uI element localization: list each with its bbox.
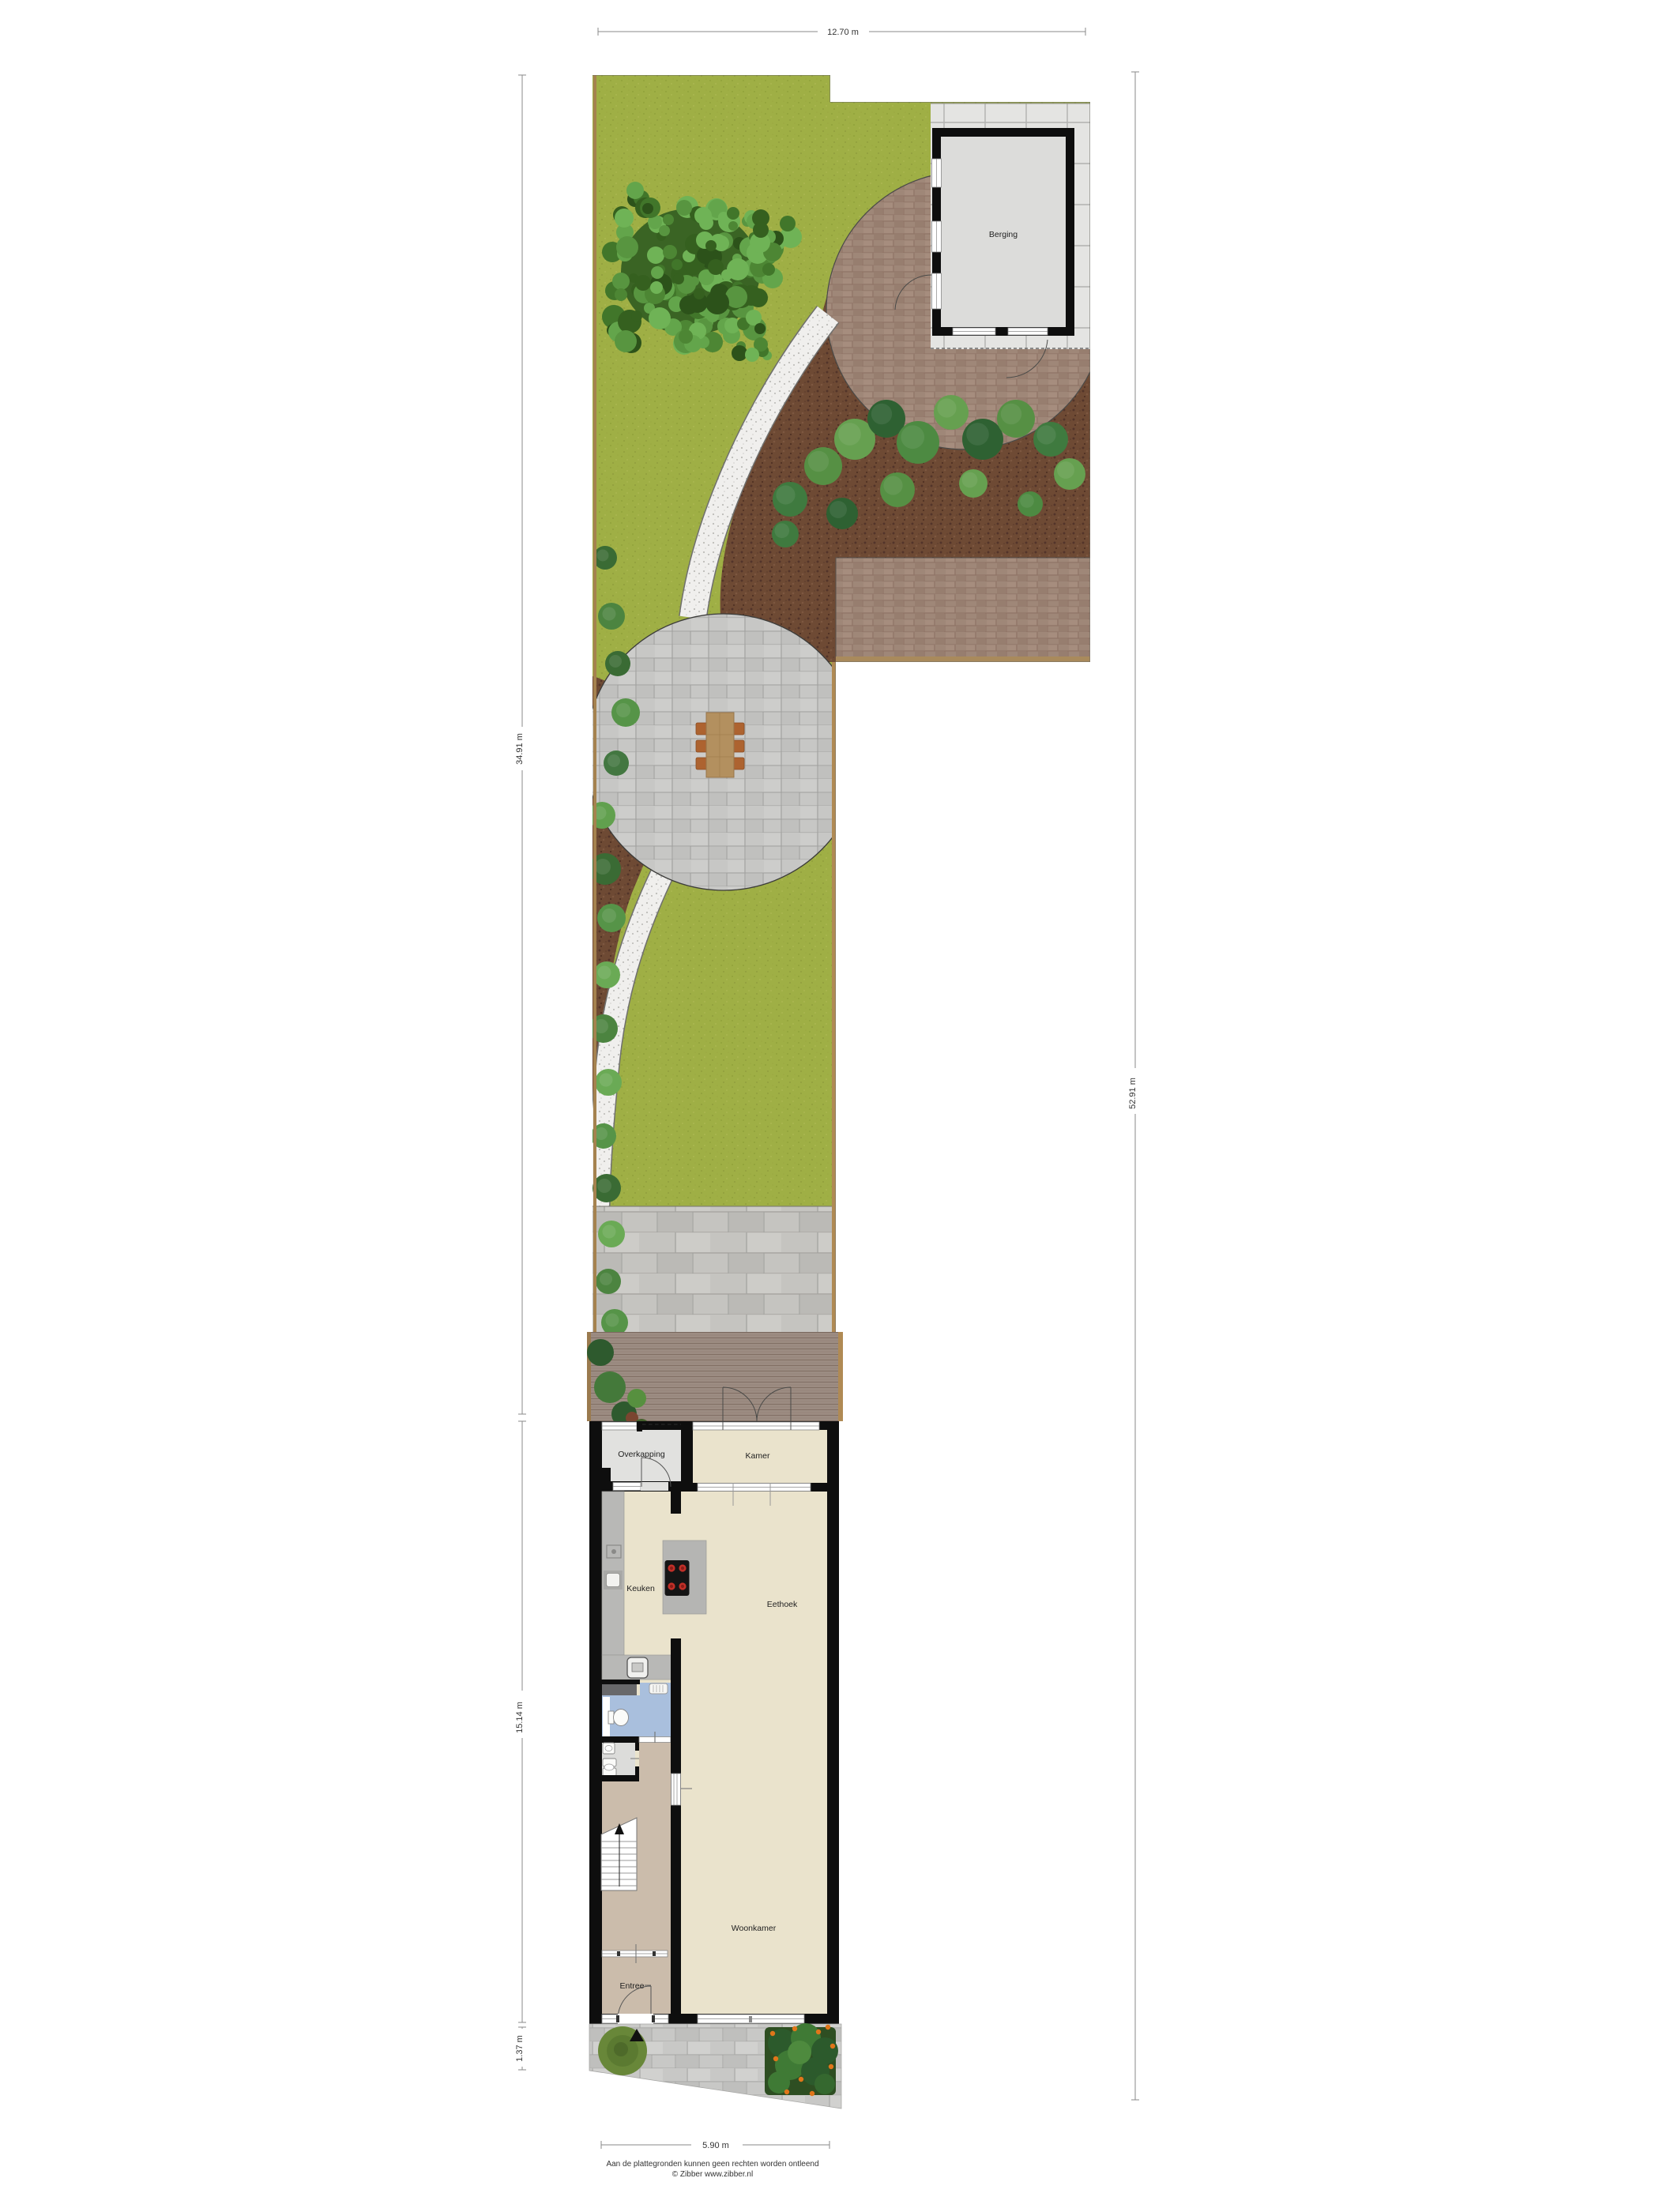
svg-text:Kamer: Kamer [746,1451,770,1461]
svg-text:52.91 m: 52.91 m [1128,1078,1138,1109]
svg-text:12.70 m: 12.70 m [827,28,859,37]
svg-text:Overkapping: Overkapping [618,1450,665,1459]
svg-text:Keuken: Keuken [626,1584,655,1593]
svg-text:15.14 m: 15.14 m [515,1702,525,1733]
svg-text:Berging: Berging [989,230,1018,239]
svg-text:Eethoek: Eethoek [767,1600,798,1609]
svg-text:© Zibber www.zibber.nl: © Zibber www.zibber.nl [672,2170,753,2179]
svg-text:34.91 m: 34.91 m [515,733,525,765]
svg-text:Aan de plattegronden kunnen ge: Aan de plattegronden kunnen geen rechten… [606,2160,818,2169]
svg-text:5.90 m: 5.90 m [702,2141,729,2150]
svg-text:1.37 m: 1.37 m [515,2035,525,2062]
svg-text:Woonkamer: Woonkamer [732,1924,777,1933]
svg-text:Entree: Entree [620,1981,645,1991]
